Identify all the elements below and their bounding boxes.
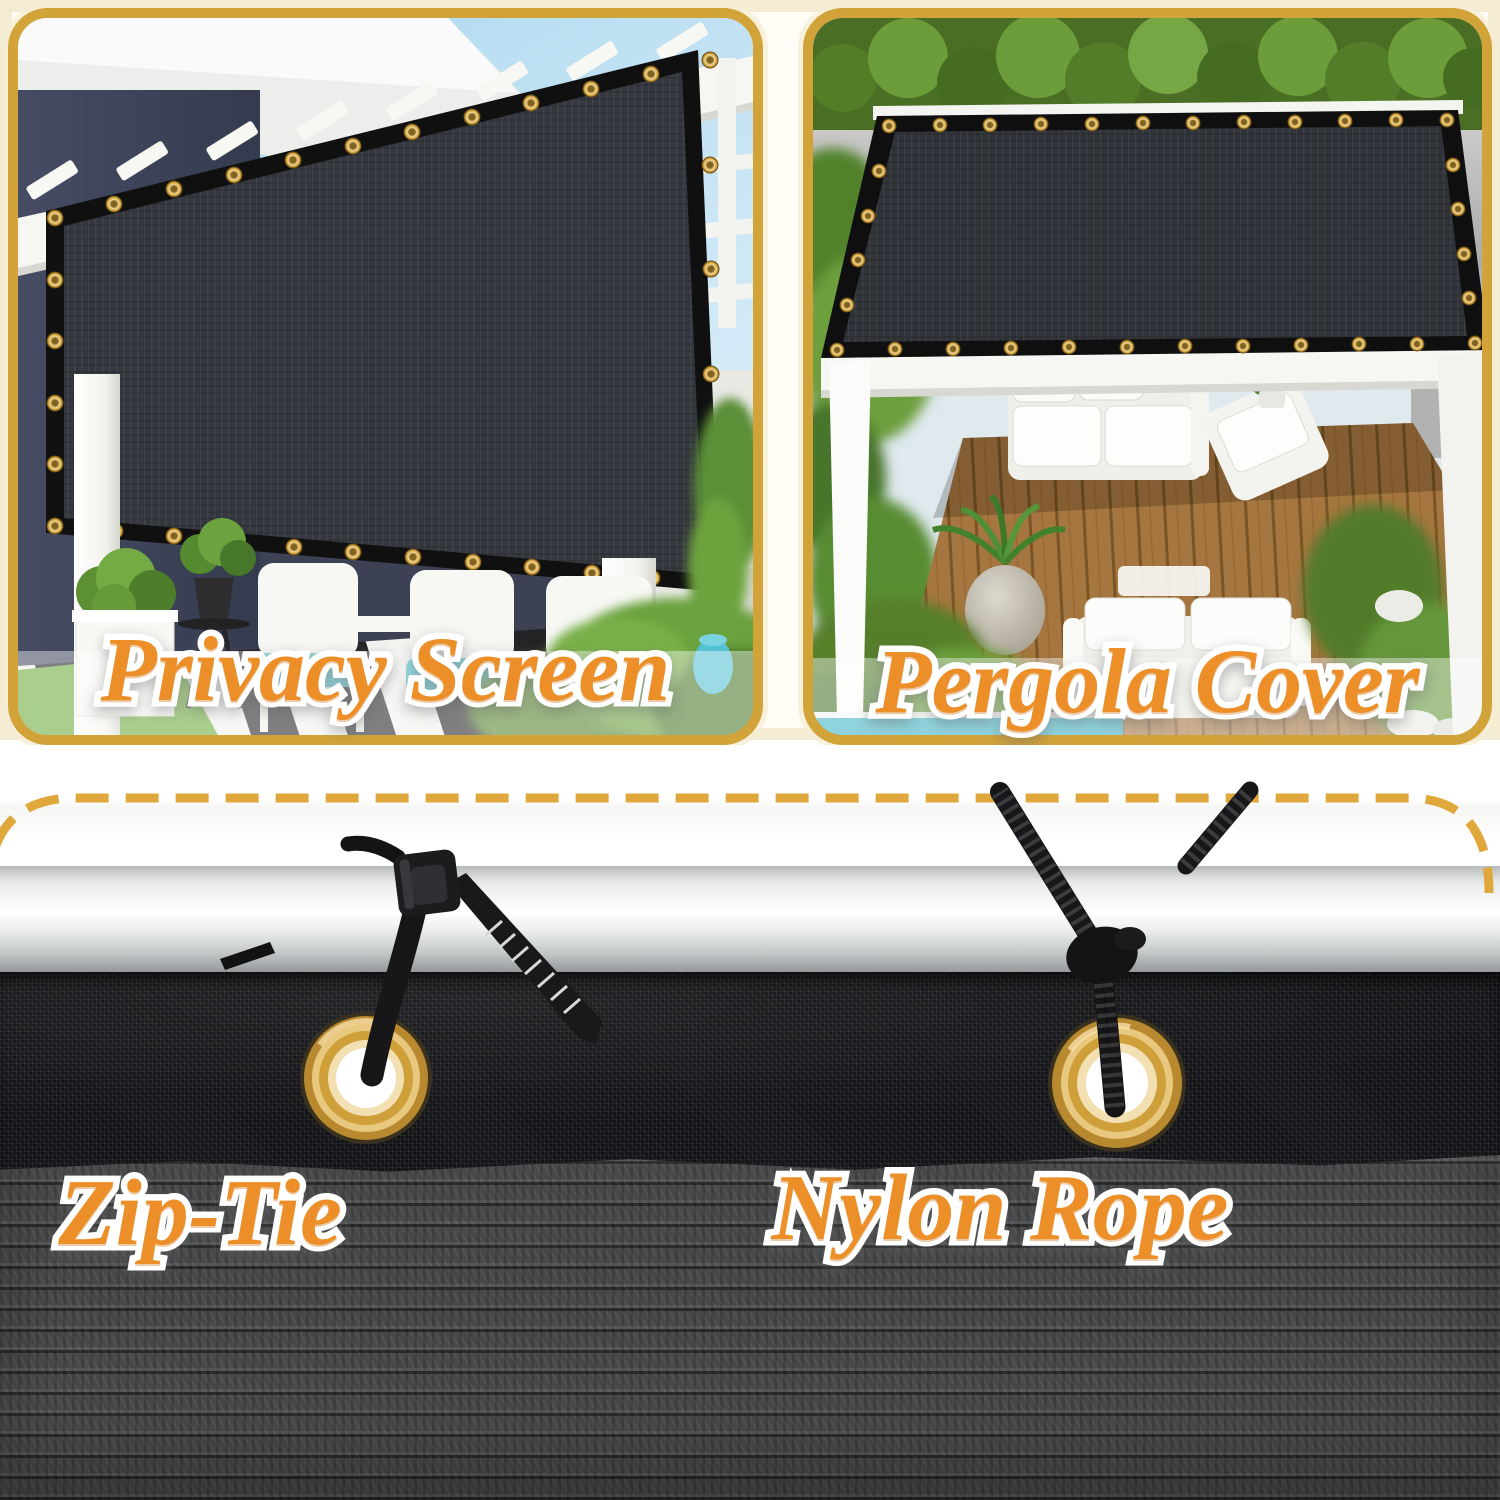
dashed-divider-line (0, 798, 1489, 895)
hardware-overlay (0, 745, 1500, 1500)
coffee-table (1118, 566, 1210, 596)
caption-fill: Pergola Cover (875, 630, 1419, 732)
product-image: Privacy Screen Privacy Screen Pergola Co… (0, 0, 1500, 1500)
pergola-roof (821, 100, 1482, 398)
caption-pergola-cover: Pergola Cover Pergola Cover (813, 634, 1482, 730)
hardware-drawing (0, 745, 1500, 1500)
pergola-cover-photo (813, 18, 1482, 735)
label-fill: Zip-Tie (58, 1161, 342, 1265)
label-zip-tie: Zip-Tie Zip-Tie (0, 1165, 400, 1263)
pergola-mesh (843, 126, 1467, 342)
caption-fill: Privacy Screen (101, 618, 671, 720)
caption-privacy-screen: Privacy Screen Privacy Screen (18, 622, 753, 718)
label-fill: Nylon Rope (772, 1156, 1229, 1260)
label-nylon-rope: Nylon Rope Nylon Rope (750, 1160, 1250, 1258)
